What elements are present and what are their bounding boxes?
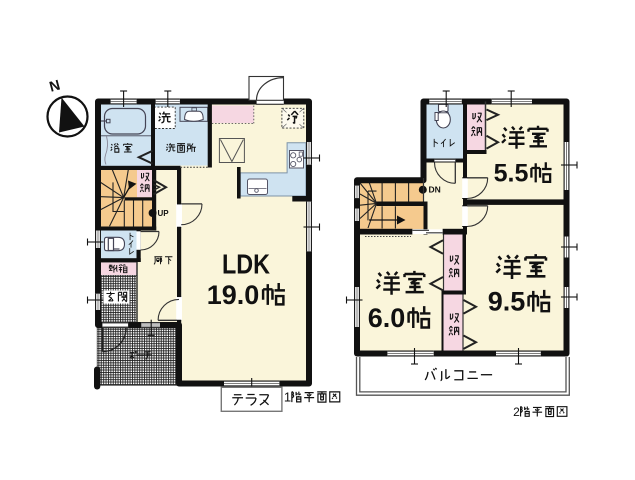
svg-text:6.0: 6.0 bbox=[368, 303, 406, 333]
svg-text:9.5: 9.5 bbox=[488, 287, 526, 317]
svg-text:2: 2 bbox=[513, 405, 520, 419]
svg-text:LDK: LDK bbox=[222, 249, 270, 280]
svg-text:DN: DN bbox=[429, 185, 441, 195]
svg-text:5.5: 5.5 bbox=[494, 160, 529, 188]
svg-text:1: 1 bbox=[284, 390, 291, 405]
svg-text:UP: UP bbox=[158, 209, 170, 218]
svg-text:19.0: 19.0 bbox=[207, 280, 260, 310]
